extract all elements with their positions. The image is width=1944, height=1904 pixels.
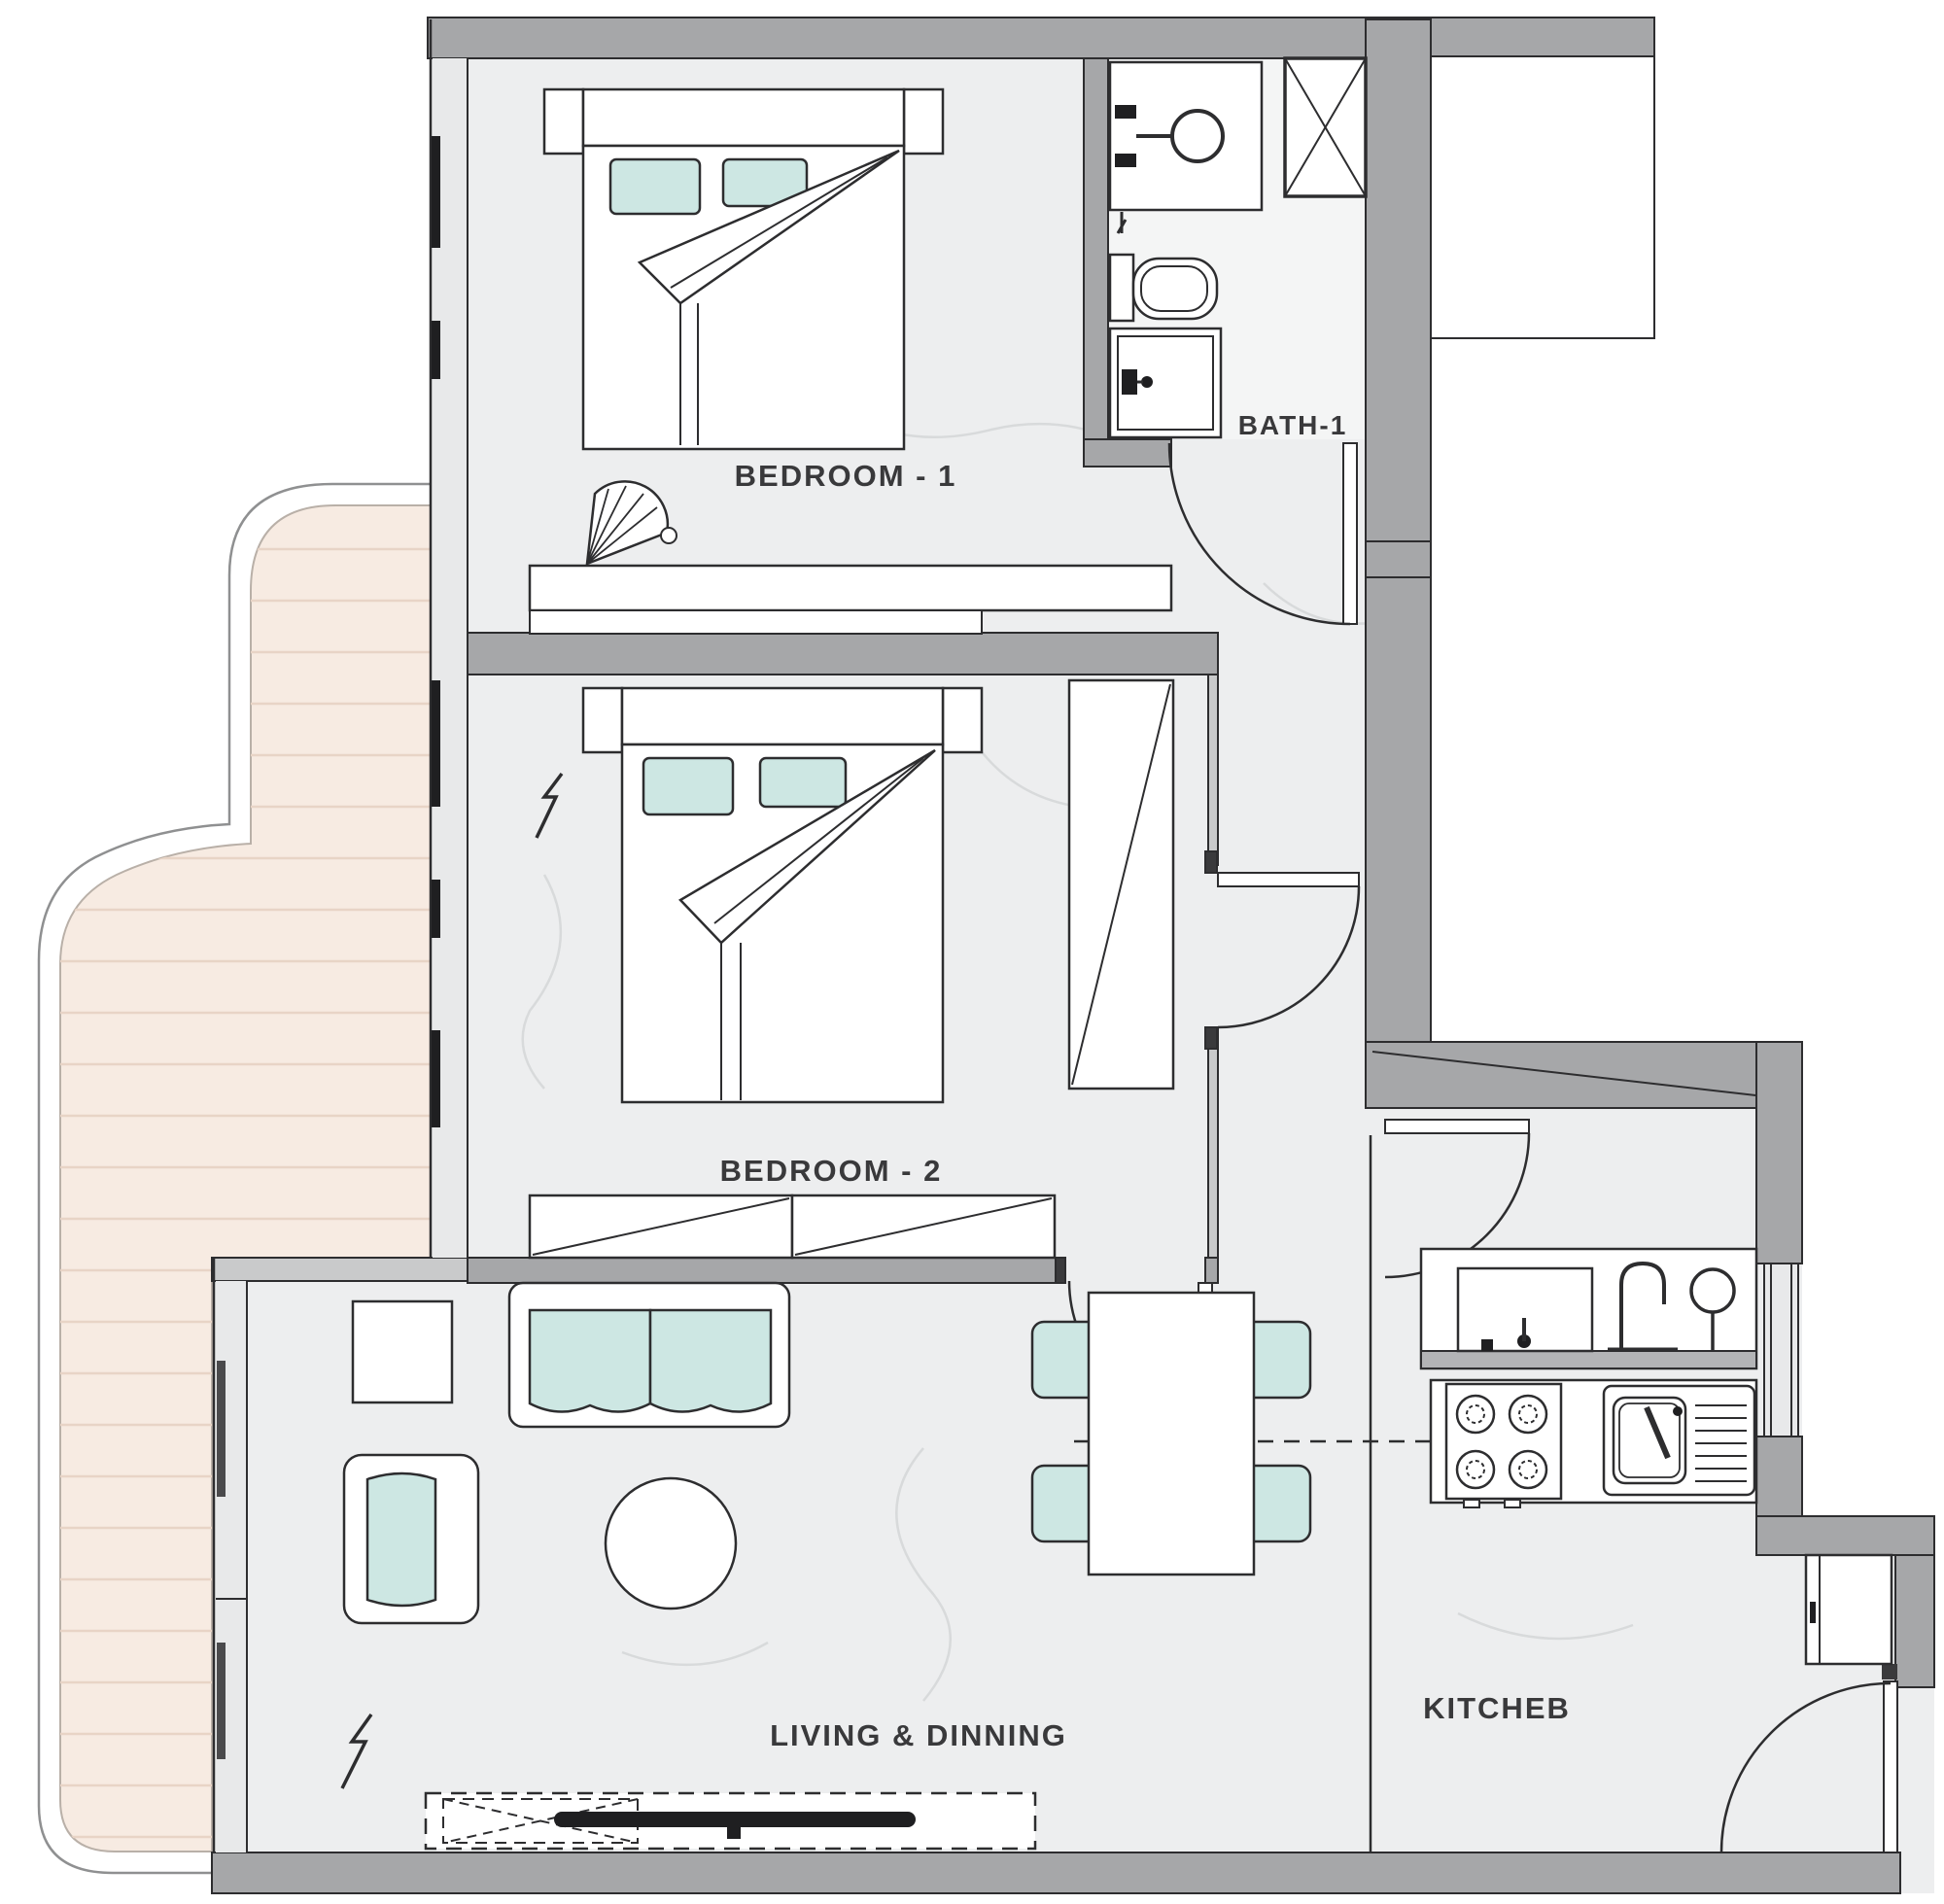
living-step-wall (212, 1258, 468, 1281)
living-dining-label: LIVING & DINNING (770, 1718, 1067, 1752)
service-shaft (1285, 58, 1366, 196)
tv-stand (727, 1827, 741, 1839)
sofa-cushion (650, 1310, 771, 1412)
kitchen-east-window (1764, 1264, 1798, 1437)
armchair-cushion (367, 1473, 435, 1606)
neighbor-outline (1431, 56, 1654, 338)
door-jamb (1882, 1664, 1897, 1679)
double-bed-1 (544, 89, 943, 449)
north-wall-extension (1431, 17, 1654, 56)
kitchen-east-wall-mid (1756, 1437, 1802, 1522)
sofa-cushion (530, 1310, 650, 1412)
vanity-sink (1110, 62, 1262, 210)
kitchen-sink (1604, 1386, 1754, 1495)
door-jamb (1056, 1258, 1065, 1283)
south-wall (212, 1852, 1900, 1893)
bath-south-wall (1084, 439, 1171, 467)
headboard (583, 89, 904, 146)
wardrobe (1069, 680, 1173, 1089)
headboard (622, 688, 943, 744)
stove-knob (1505, 1500, 1520, 1507)
bedroom2-label: BEDROOM - 2 (720, 1154, 943, 1188)
armchair (344, 1455, 478, 1623)
nightstand (583, 688, 622, 752)
fridge (1806, 1555, 1892, 1664)
door-jamb (1205, 1027, 1217, 1049)
sofa (509, 1283, 789, 1427)
pillow (760, 758, 846, 807)
kitchen-counter-north (1421, 1249, 1756, 1368)
west-window-wall-bedrooms (431, 19, 468, 1258)
door-jamb (1205, 851, 1217, 873)
nightstand (904, 89, 943, 154)
bedroom-divider-wall (468, 633, 1218, 675)
east-wall-upper (1366, 19, 1431, 1042)
floor-plan-drawing: BEDROOM - 1 BATH-1 BEDROOM - 2 LIVING & … (0, 0, 1944, 1904)
side-table (353, 1301, 452, 1402)
east-wall-lower (1895, 1555, 1934, 1687)
kitchen-east-wall-upper (1756, 1042, 1802, 1264)
nightstand (943, 688, 982, 752)
dining-table (1089, 1293, 1254, 1575)
closet-band (530, 1195, 1055, 1258)
west-window-wall-living (214, 1258, 247, 1852)
tv-console (426, 1793, 1035, 1849)
nightstand (544, 89, 583, 154)
stove-knob (1464, 1500, 1479, 1507)
north-wall (428, 17, 1431, 58)
pillow (643, 758, 733, 814)
kitchen-step-wall (1756, 1516, 1934, 1555)
bedroom1-label: BEDROOM - 1 (735, 459, 957, 493)
floor-plan-page: BEDROOM - 1 BATH-1 BEDROOM - 2 LIVING & … (0, 0, 1944, 1904)
kitchen-label: KITCHEB (1423, 1691, 1571, 1725)
bath-west-wall (1084, 58, 1108, 439)
kitchen-counter-island (1431, 1380, 1756, 1507)
shower (1110, 329, 1221, 437)
bath1-label: BATH-1 (1238, 410, 1348, 440)
gas-stove (1446, 1384, 1561, 1507)
tv (554, 1812, 916, 1827)
pillow (610, 159, 700, 214)
double-bed-2 (583, 688, 982, 1102)
bedroom2-south-wall-end (1205, 1258, 1218, 1283)
bedroom2-south-wall (468, 1258, 1061, 1283)
coffee-table (606, 1478, 736, 1609)
